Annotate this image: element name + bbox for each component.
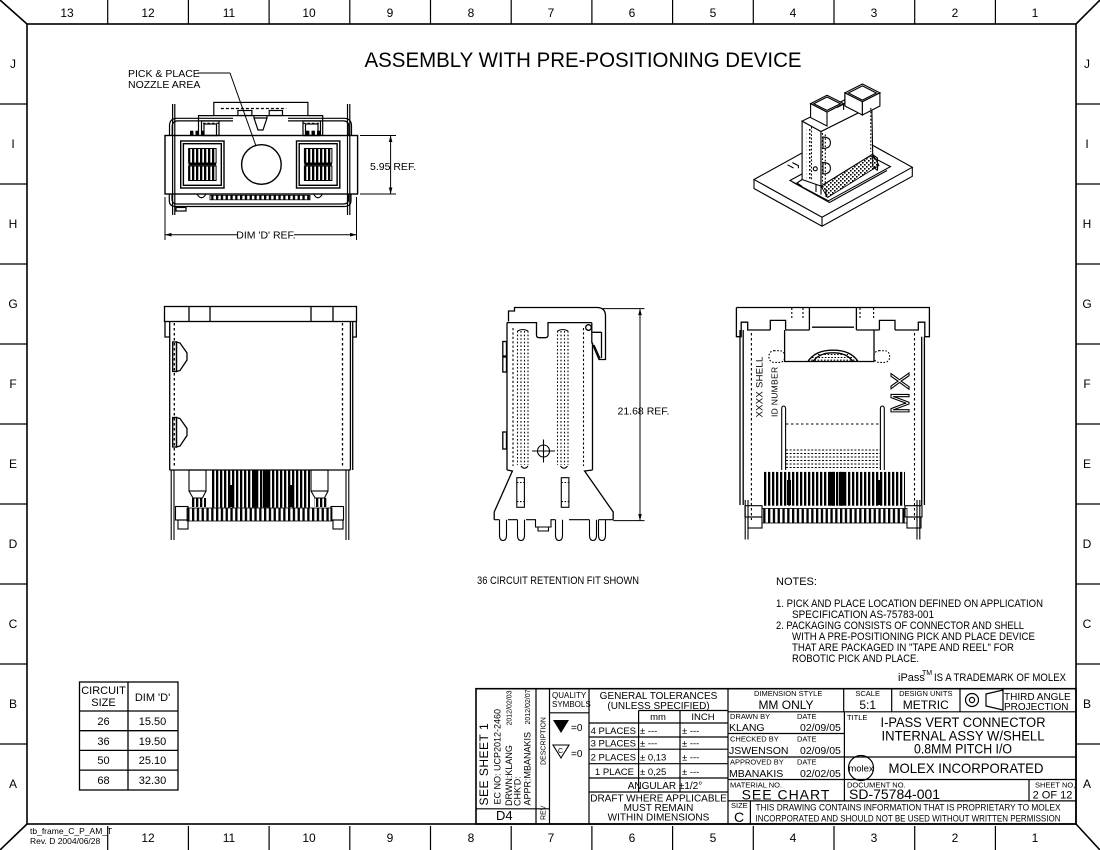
- svg-text:± 0,13: ± 0,13: [640, 753, 666, 764]
- svg-text:3: 3: [871, 6, 878, 20]
- svg-text:Rev. D 2004/06/28: Rev. D 2004/06/28: [30, 836, 101, 846]
- svg-text:2 OF 12: 2 OF 12: [1033, 790, 1073, 802]
- svg-text:2012/02/03: 2012/02/03: [507, 690, 514, 725]
- svg-text:SCALE: SCALE: [855, 689, 880, 698]
- svg-text:C: C: [9, 617, 18, 631]
- svg-text:36 CIRCUIT RETENTION FIT SHOWN: 36 CIRCUIT RETENTION FIT SHOWN: [477, 575, 639, 587]
- svg-text:2: 2: [952, 831, 959, 845]
- svg-text:F: F: [1083, 377, 1090, 391]
- svg-text:± ---: ± ---: [640, 739, 657, 750]
- svg-text:SIZE: SIZE: [91, 697, 115, 709]
- svg-text:12: 12: [141, 831, 155, 845]
- svg-text:IS A TRADEMARK OF MOLEX: IS A TRADEMARK OF MOLEX: [934, 672, 1067, 684]
- svg-text:± ---: ± ---: [682, 767, 699, 778]
- svg-text:6: 6: [629, 6, 636, 20]
- svg-text:1: 1: [1032, 831, 1039, 845]
- svg-text:DESIGN UNITS: DESIGN UNITS: [899, 689, 952, 698]
- svg-text:68: 68: [97, 775, 109, 787]
- svg-text:DIM 'D': DIM 'D': [135, 692, 170, 704]
- svg-text:G: G: [1082, 297, 1091, 311]
- svg-text:21.68 REF.: 21.68 REF.: [618, 406, 670, 418]
- svg-text:APPR:MBANAKIS: APPR:MBANAKIS: [523, 732, 533, 806]
- svg-text:B: B: [9, 697, 17, 711]
- svg-text:6: 6: [629, 831, 636, 845]
- svg-text:1: 1: [1032, 6, 1039, 20]
- svg-text:C: C: [1083, 617, 1092, 631]
- svg-text:7: 7: [548, 831, 555, 845]
- svg-text:4 PLACES: 4 PLACES: [591, 726, 636, 737]
- svg-text:D4: D4: [496, 808, 513, 823]
- svg-text:36: 36: [97, 736, 109, 748]
- svg-text:KLANG: KLANG: [729, 722, 765, 734]
- svg-text:E: E: [1083, 457, 1091, 471]
- svg-text:D: D: [1083, 537, 1092, 551]
- svg-text:5: 5: [710, 831, 717, 845]
- svg-text:SEE SHEET 1: SEE SHEET 1: [477, 723, 491, 806]
- svg-text:NOZZLE AREA: NOZZLE AREA: [128, 79, 200, 91]
- svg-text:02/02/05: 02/02/05: [800, 768, 841, 780]
- svg-text:ASSEMBLY WITH PRE-POSITIONING: ASSEMBLY WITH PRE-POSITIONING DEVICE: [365, 49, 802, 72]
- svg-text:D: D: [9, 537, 18, 551]
- svg-text:± ---: ± ---: [682, 753, 699, 764]
- svg-text:DIMENSION STYLE: DIMENSION STYLE: [754, 689, 822, 698]
- svg-text:26: 26: [97, 716, 109, 728]
- svg-text:APPROVED BY: APPROVED BY: [730, 758, 784, 767]
- svg-text:molex: molex: [848, 764, 874, 775]
- svg-text:02/09/05: 02/09/05: [800, 722, 841, 734]
- svg-text:25.10: 25.10: [139, 755, 167, 767]
- svg-text:ROBOTIC PICK AND PLACE.: ROBOTIC PICK AND PLACE.: [792, 653, 919, 665]
- svg-text:11: 11: [223, 831, 236, 845]
- svg-text:NOTES:: NOTES:: [776, 576, 817, 588]
- svg-text:0.8MM PITCH I/O: 0.8MM PITCH I/O: [914, 742, 1012, 757]
- svg-text:INCH: INCH: [691, 712, 714, 723]
- svg-text:A: A: [1083, 777, 1091, 791]
- svg-text:1 PLACE: 1 PLACE: [595, 767, 634, 778]
- svg-text:(UNLESS SPECIFIED): (UNLESS SPECIFIED): [607, 701, 709, 712]
- svg-text:3 PLACES: 3 PLACES: [591, 739, 636, 750]
- svg-text:11: 11: [223, 6, 236, 20]
- svg-text:10: 10: [302, 6, 316, 20]
- svg-text:EC NO: UCP2012-2460: EC NO: UCP2012-2460: [493, 709, 503, 805]
- svg-text:METRIC: METRIC: [903, 698, 949, 712]
- svg-text:REV: REV: [541, 805, 548, 820]
- svg-text:C: C: [734, 809, 744, 825]
- svg-text:± ---: ± ---: [682, 726, 699, 737]
- svg-text:12: 12: [141, 6, 155, 20]
- svg-text:DRAWN BY: DRAWN BY: [730, 712, 770, 721]
- svg-text:QUALITY: QUALITY: [552, 691, 587, 700]
- svg-text:SYMBOLS: SYMBOLS: [552, 700, 591, 709]
- svg-text:4: 4: [790, 6, 797, 20]
- svg-text:SD-75784-001: SD-75784-001: [849, 786, 940, 802]
- svg-text:XXXX SHELL: XXXX SHELL: [755, 356, 766, 417]
- svg-text:3: 3: [871, 831, 878, 845]
- svg-text:=0: =0: [571, 749, 583, 760]
- svg-text:2 PLACES: 2 PLACES: [591, 753, 636, 764]
- svg-text:=0: =0: [571, 723, 583, 734]
- svg-text:± ---: ± ---: [640, 726, 657, 737]
- svg-text:CHECKED BY: CHECKED BY: [730, 735, 779, 744]
- svg-text:15.50: 15.50: [139, 716, 167, 728]
- svg-text:B: B: [1083, 697, 1091, 711]
- svg-text:C: C: [558, 748, 563, 755]
- svg-text:H: H: [1083, 217, 1092, 231]
- svg-text:tb_frame_C_P_AM_T: tb_frame_C_P_AM_T: [30, 826, 112, 836]
- svg-text:I: I: [11, 137, 14, 151]
- svg-text:5: 5: [710, 6, 717, 20]
- svg-text:32.30: 32.30: [139, 775, 167, 787]
- svg-text:DATE: DATE: [797, 712, 816, 721]
- svg-text:5:1: 5:1: [859, 698, 876, 712]
- svg-text:MBANAKIS: MBANAKIS: [729, 768, 783, 780]
- svg-text:PROJECTION: PROJECTION: [1004, 702, 1068, 713]
- svg-text:MM ONLY: MM ONLY: [758, 698, 813, 712]
- svg-text:DATE: DATE: [797, 758, 816, 767]
- svg-text:E: E: [9, 457, 17, 471]
- svg-text:8: 8: [468, 831, 475, 845]
- svg-text:± ---: ± ---: [682, 739, 699, 750]
- svg-text:4: 4: [790, 831, 797, 845]
- svg-text:02/09/05: 02/09/05: [800, 745, 841, 757]
- svg-text:5.95 REF.: 5.95 REF.: [370, 161, 416, 173]
- svg-text:10: 10: [302, 831, 316, 845]
- svg-text:H: H: [9, 217, 18, 231]
- svg-text:ID NUMBER: ID NUMBER: [770, 367, 780, 417]
- svg-text:9: 9: [387, 6, 394, 20]
- svg-text:50: 50: [97, 755, 109, 767]
- svg-text:8: 8: [468, 6, 475, 20]
- svg-text:2: 2: [952, 6, 959, 20]
- svg-text:2012/02/07: 2012/02/07: [525, 689, 532, 724]
- svg-text:F: F: [9, 377, 16, 391]
- svg-text:DESCRIPTION: DESCRIPTION: [541, 717, 548, 765]
- svg-text:13: 13: [60, 6, 74, 20]
- svg-text:MOLEX INCORPORATED: MOLEX INCORPORATED: [889, 760, 1044, 776]
- svg-text:± 0,25: ± 0,25: [640, 767, 666, 778]
- svg-text:SHEET NO,: SHEET NO,: [1035, 781, 1075, 790]
- svg-text:SEE CHART: SEE CHART: [742, 787, 831, 803]
- svg-text:WITHIN DIMENSIONS: WITHIN DIMENSIONS: [608, 813, 710, 824]
- svg-text:CHK'D:: CHK'D:: [513, 776, 523, 806]
- svg-text:ANGULAR ±1/2°: ANGULAR ±1/2°: [628, 781, 703, 792]
- svg-text:MX: MX: [885, 370, 915, 414]
- svg-text:9: 9: [387, 831, 394, 845]
- svg-text:INCORPORATED AND SHOULD NOT BE: INCORPORATED AND SHOULD NOT BE USED WITH…: [756, 814, 1061, 824]
- svg-text:G: G: [8, 297, 17, 311]
- svg-text:TITLE: TITLE: [847, 713, 867, 722]
- svg-text:CIRCUIT: CIRCUIT: [81, 685, 126, 697]
- svg-text:TM: TM: [922, 670, 932, 677]
- svg-text:I: I: [1085, 137, 1088, 151]
- svg-text:DATE: DATE: [797, 735, 816, 744]
- svg-text:DIM 'D' REF.: DIM 'D' REF.: [236, 230, 295, 242]
- svg-text:19.50: 19.50: [139, 736, 167, 748]
- svg-text:JSWENSON: JSWENSON: [729, 745, 789, 757]
- svg-text:THIS DRAWING CONTAINS INFORMAT: THIS DRAWING CONTAINS INFORMATION THAT I…: [756, 803, 1061, 813]
- svg-text:7: 7: [548, 6, 555, 20]
- svg-text:mm: mm: [650, 712, 666, 723]
- svg-text:J: J: [10, 57, 16, 71]
- svg-text:A: A: [9, 777, 17, 791]
- svg-text:J: J: [1084, 57, 1090, 71]
